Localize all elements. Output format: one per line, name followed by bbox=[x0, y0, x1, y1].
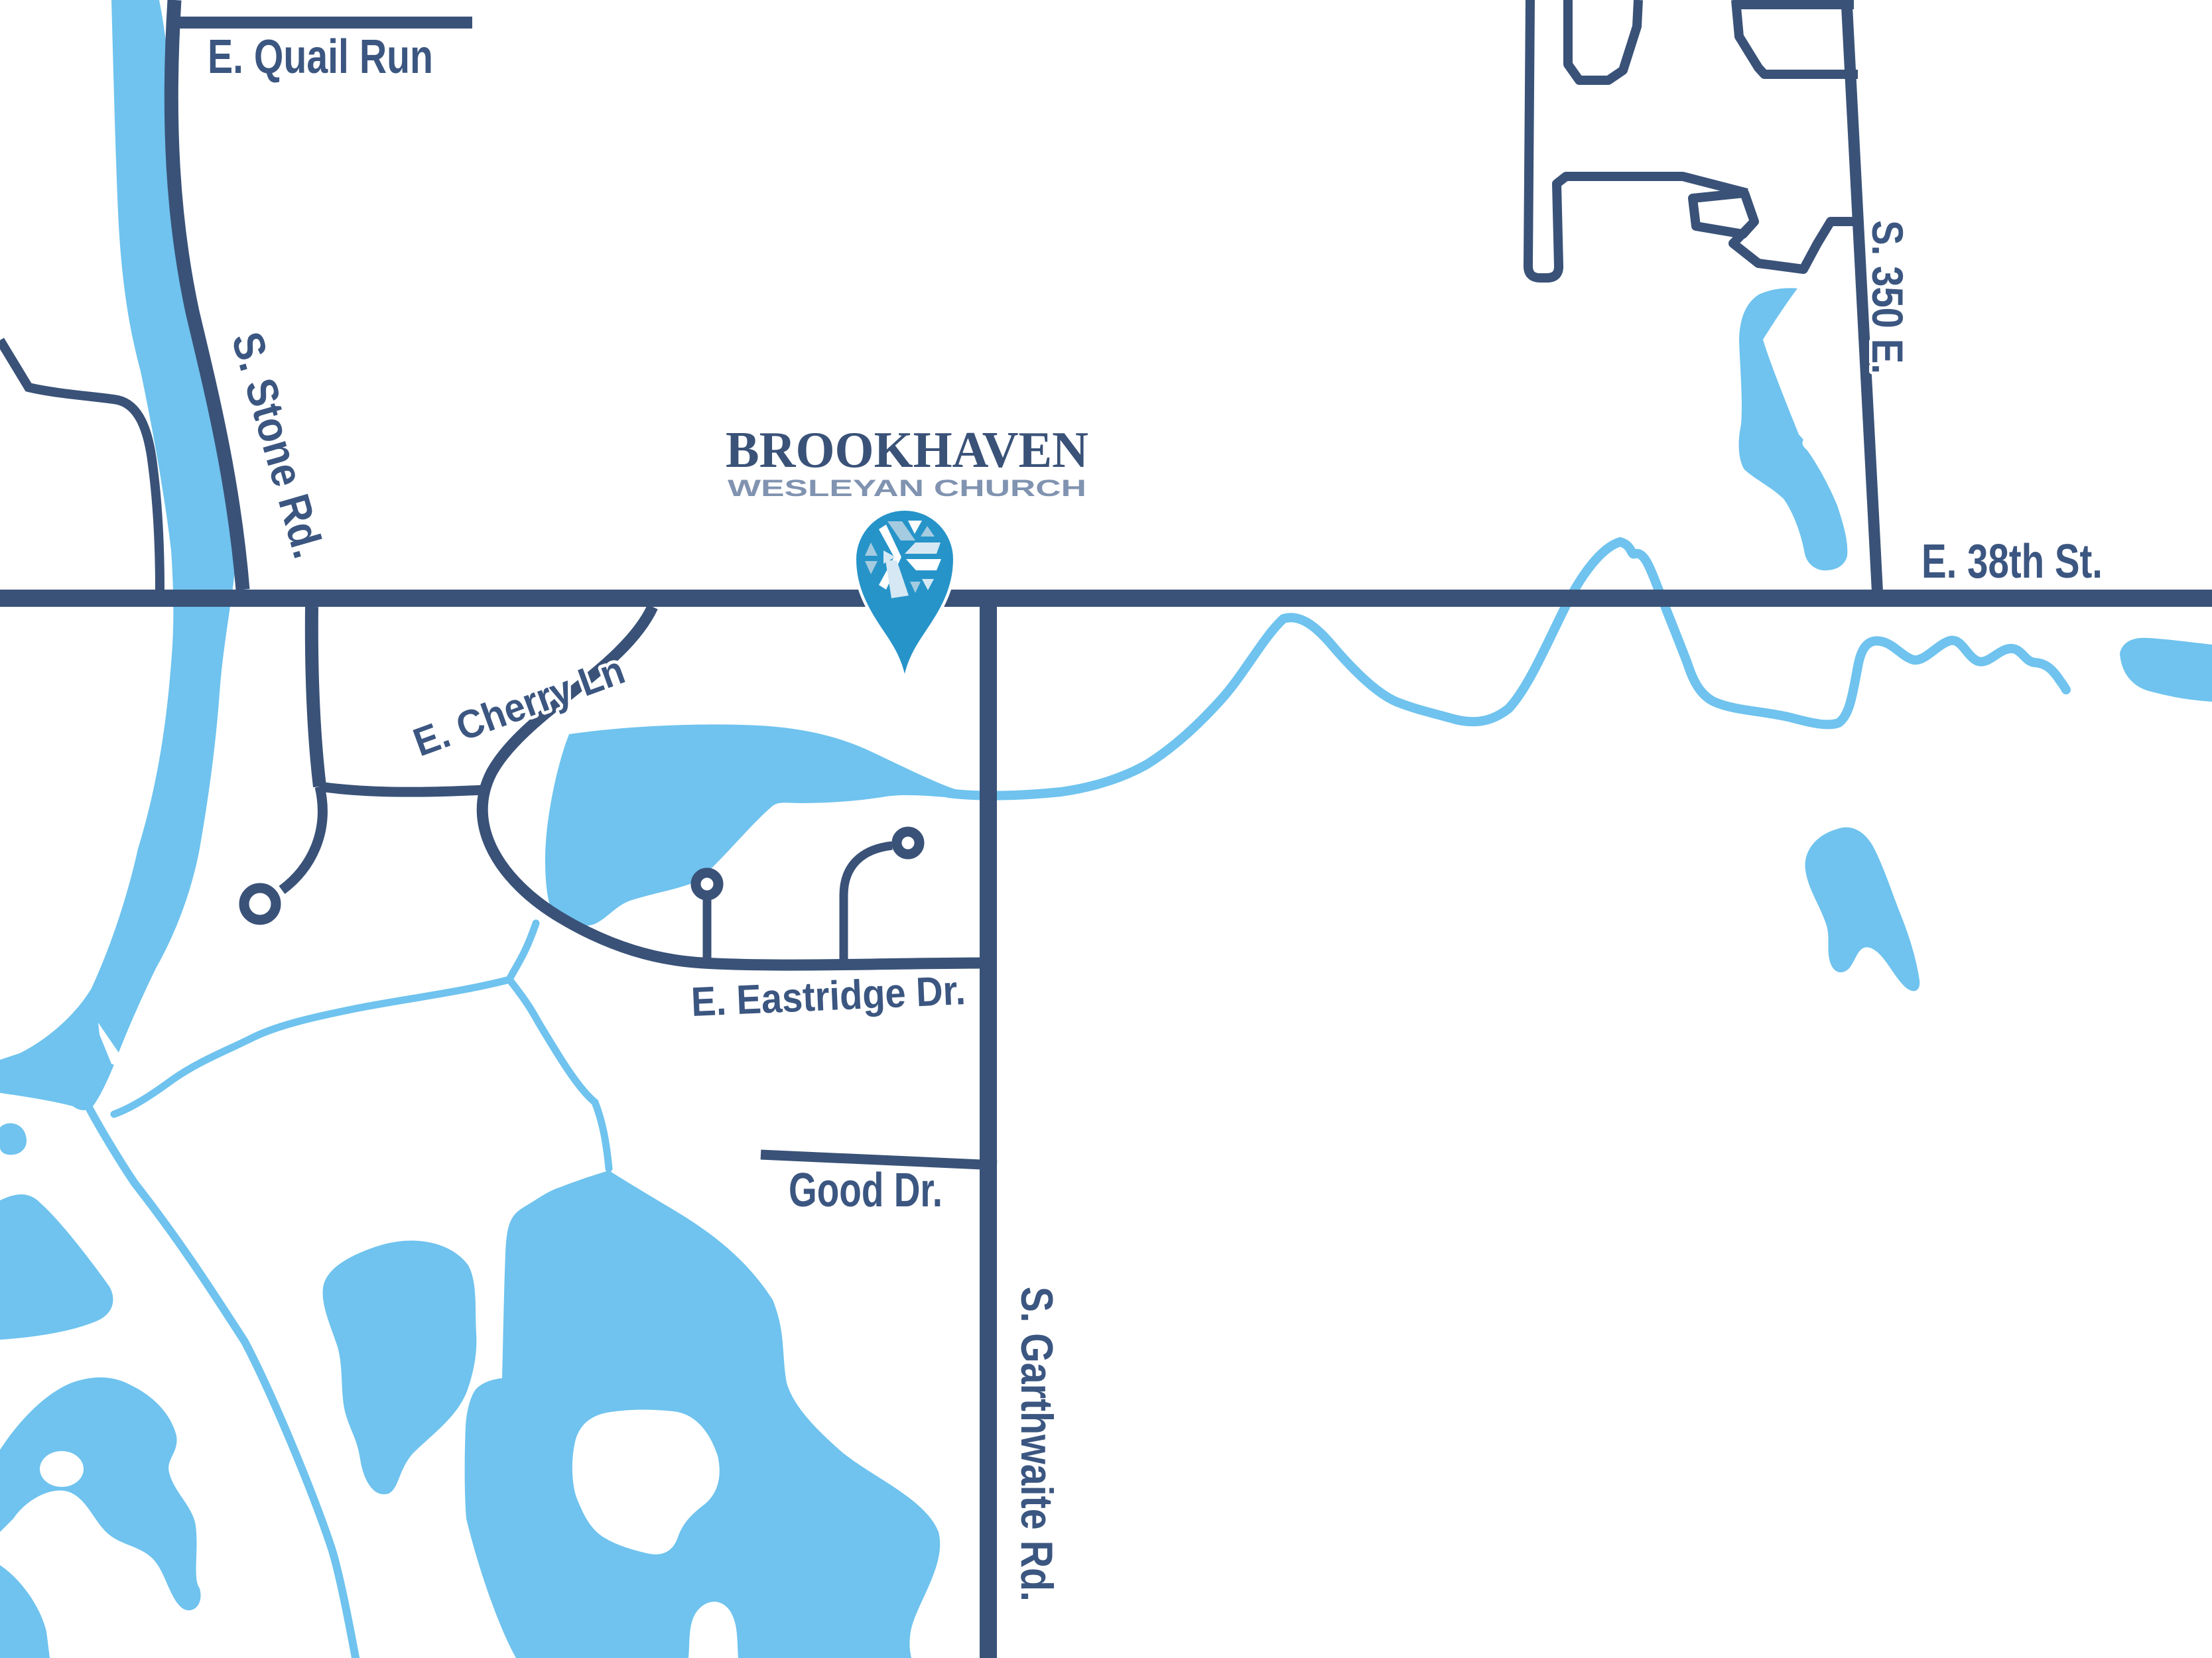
svg-text:E. Quail Run: E. Quail Run bbox=[208, 31, 433, 84]
svg-text:S. Garthwaite Rd.: S. Garthwaite Rd. bbox=[1011, 1287, 1062, 1602]
svg-text:WESLEYAN CHURCH: WESLEYAN CHURCH bbox=[728, 476, 1086, 501]
svg-text:BROOKHAVEN: BROOKHAVEN bbox=[726, 421, 1088, 478]
svg-text:E. 38th St.: E. 38th St. bbox=[1921, 535, 2103, 588]
svg-text:Good Dr.: Good Dr. bbox=[789, 1164, 943, 1217]
svg-text:S. 350 E.: S. 350 E. bbox=[1863, 220, 1912, 374]
